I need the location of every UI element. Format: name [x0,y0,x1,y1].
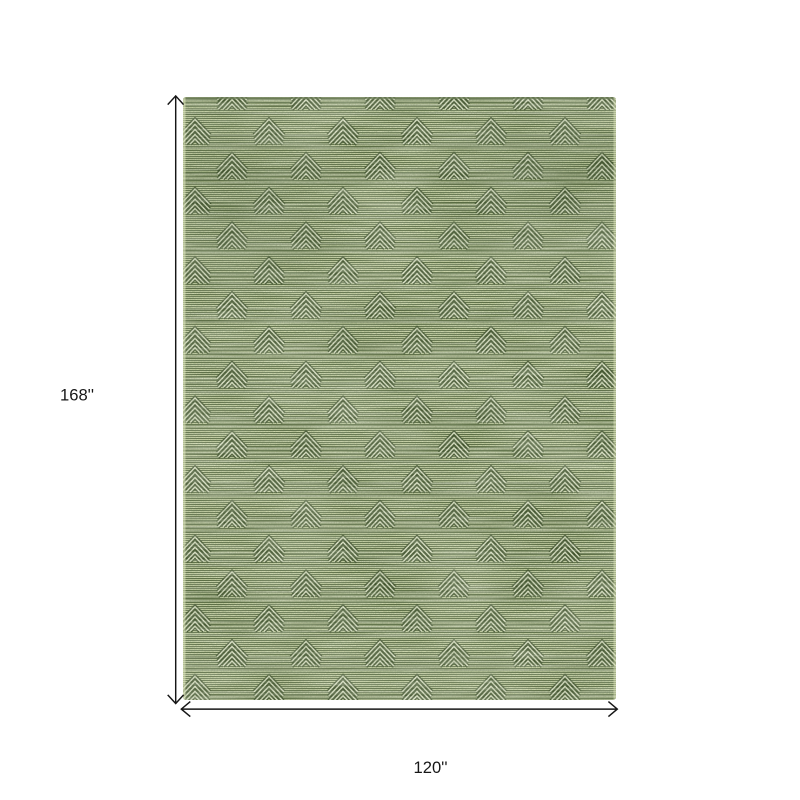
svg-text:120'': 120'' [414,758,448,777]
svg-text:168'': 168'' [60,386,94,405]
